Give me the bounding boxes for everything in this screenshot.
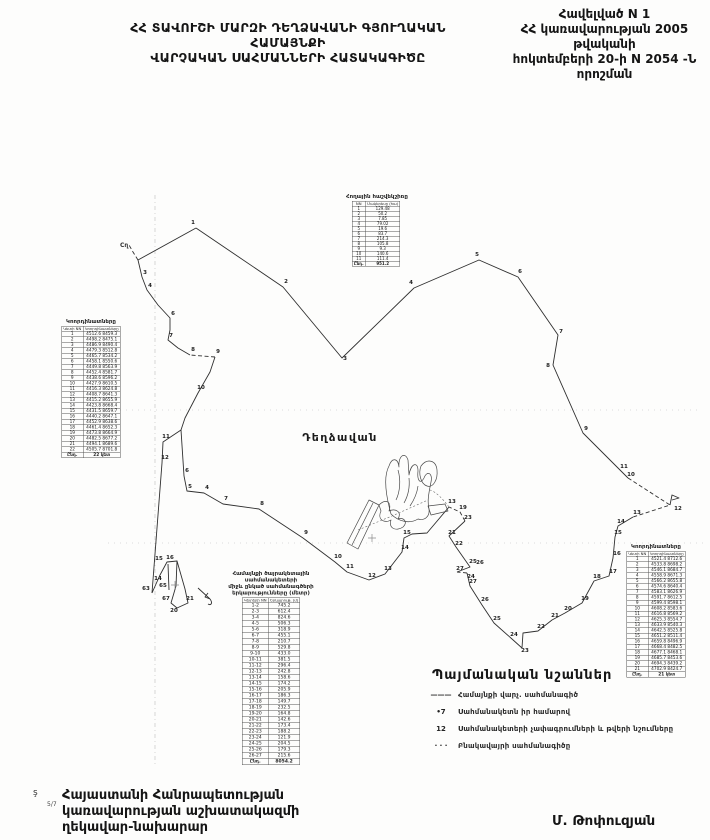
boundary-point-label: 1 <box>191 220 195 226</box>
table-row: 164659.8 8496.9 <box>627 639 686 645</box>
boundary-point-label: 4 <box>148 283 152 289</box>
boundary-point-label: 13 <box>633 510 641 516</box>
signature-block: Հայաստանի Հանրապետության կառավարության ա… <box>62 788 299 836</box>
col-header: Կետի NN <box>627 551 648 556</box>
boundary-point-label: 22 <box>537 624 545 630</box>
village-shape-block-east <box>428 504 448 515</box>
signature-line-2: կառավարության աշխատակազմի <box>62 804 299 820</box>
table-row: 194473.8 8664.9 <box>62 430 121 436</box>
col-header: Երկարութ. (մ) <box>268 598 299 603</box>
cross-mark-2 <box>368 534 376 542</box>
boundary-pocket-stem <box>168 564 169 590</box>
boundary-point-label: 6 <box>171 311 175 317</box>
table-row: 14512.6 8459.3 <box>62 331 121 337</box>
table-landuse-title: Հողային հաշվեկշիռը <box>346 193 406 200</box>
boundary-point-label: 6 <box>185 468 189 474</box>
cross-mark-1 <box>171 581 179 589</box>
legend-symbol: · · · <box>424 742 458 750</box>
flag-point-12 <box>670 495 679 505</box>
legend-item: 12 Սահմանակետերի չափագրումների և թվերի ն… <box>424 725 674 733</box>
legend-symbol: 12 <box>424 725 458 733</box>
table-row: 174452.9 8638.6 <box>62 419 121 425</box>
table-row: 224505.7 8701.8 <box>62 447 121 453</box>
boundary-point-labels: 1234567891011121314151617181920212223242… <box>142 220 682 654</box>
table-row: 84591.7 8612.5 <box>627 595 686 601</box>
table-segments: Համայնքի ծայրակետային սահմանակետերի միջև… <box>226 570 316 765</box>
legend-item: · · · Բնակավայրի սահմանագիծը <box>424 742 674 750</box>
col-header: Կետի NN <box>62 326 83 331</box>
table-coords-left-title: Կոորդինատները <box>58 318 124 325</box>
table-row: 104608.2 8583.6 <box>627 606 686 612</box>
table-row: 74583.1 8626.9 <box>627 589 686 595</box>
scanned-map-sheet: ՀՀ ՏԱՎՈՒՇԻ ՄԱՐԶԻ ԴԵՂՁԱՎԱՆԻ ԳՅՈՒՂԱԿԱՆ ՀԱՄ… <box>0 0 710 840</box>
village-road-dashed <box>358 490 449 530</box>
table-row: 44479.3 8512.8 <box>62 348 121 354</box>
boundary-point-label: 26 <box>476 560 484 566</box>
boundary-pocket <box>152 561 188 608</box>
boundary-point-label: 2 <box>284 279 288 285</box>
boundary-point-label: 11 <box>620 464 628 470</box>
boundary-point-label: 7 <box>559 329 563 335</box>
legend-item-label: Համայնքի վարչ. սահմանագիծ <box>458 691 578 699</box>
table-row: 144642.5 8525.8 <box>627 628 686 634</box>
signature-line-3: ղեկավար-նախարար <box>62 820 299 836</box>
boundary-point-label: 4 <box>205 485 209 491</box>
table-row: 144423.8 8668.4 <box>62 403 121 409</box>
table-row: 74449.8 8563.9 <box>62 364 121 370</box>
table-row: 84452.4 8581.7 <box>62 370 121 376</box>
boundary-point-label: 14 <box>401 545 409 551</box>
table-row: 194685.7 8453.6 <box>627 655 686 661</box>
boundary-point-label: 13 <box>384 566 392 572</box>
boundary-point-label: 10 <box>197 385 205 391</box>
boundary-point-label: 23 <box>521 648 529 654</box>
village-shape-strip <box>347 500 379 549</box>
col-header: Մակերեսը (հա) <box>365 201 400 206</box>
boundary-west-chain <box>184 476 449 580</box>
boundary-point-label: 8 <box>260 501 264 507</box>
table-row: 104427.9 8610.5 <box>62 381 121 387</box>
boundary-point-label: 22 <box>455 541 463 547</box>
boundary-point-label: 27 <box>456 566 464 572</box>
boundary-point-label: 9 <box>584 426 588 432</box>
boundary-point-label: 20 <box>564 606 572 612</box>
table-row: 134415.2 8655.9 <box>62 397 121 403</box>
table-segments-title: Համայնքի ծայրակետային սահմանակետերի միջև… <box>226 570 316 596</box>
boundary-point-label: 9 <box>304 530 308 536</box>
col-header: Կոորդինատները <box>83 326 120 331</box>
table-row: 24498.2 8475.1 <box>62 337 121 343</box>
boundary-point-label: 63 <box>142 586 150 592</box>
boundary-point-label: 18 <box>593 574 601 580</box>
boundary-point-label: 25 <box>493 616 501 622</box>
boundary-point-label: 17 <box>609 569 617 575</box>
legend-item: ——— Համայնքի վարչ. սահմանագիծ <box>424 691 674 699</box>
table-row: 164440.2 8647.1 <box>62 414 121 420</box>
boundary-point-label: 12 <box>161 455 169 461</box>
boundary-nw-dash <box>190 355 215 357</box>
boundary-point-label: 8 <box>546 363 550 369</box>
boundary-point-label: 11 <box>162 434 170 440</box>
legend: Պայմանական նշաններ ——— Համայնքի վարչ. սա… <box>424 668 674 759</box>
signatory-name: Մ. Թոփուզյան <box>552 813 655 829</box>
boundary-point-label: 19 <box>581 596 589 602</box>
boundary-point-label: 14 <box>154 576 162 582</box>
table-row: 204482.5 8677.2 <box>62 436 121 442</box>
legend-symbol: •7 <box>424 708 458 716</box>
boundary-point-label: 12 <box>674 506 682 512</box>
arrow-mark <box>198 588 211 605</box>
boundary-point-label: 15 <box>614 530 622 536</box>
table-row: 204694.3 8439.2 <box>627 661 686 667</box>
boundary-point-label: 6 <box>518 269 522 275</box>
boundary-point-label: 12 <box>368 573 376 579</box>
boundary-point-label: 23 <box>464 515 472 521</box>
boundary-point-label: 3 <box>343 356 347 362</box>
table-coords-left: Կոորդինատները Կետի NN Կոորդինատները 1451… <box>58 318 124 458</box>
table-row: 64458.1 8550.6 <box>62 359 121 365</box>
legend-item-label: Բնակավայրի սահմանագիծը <box>458 742 570 750</box>
boundary-point-label: 13 <box>448 499 456 505</box>
table-row: 154431.5 8659.7 <box>62 408 121 414</box>
boundary-point-label: 10 <box>627 472 635 478</box>
table-row: 44558.9 8671.3 <box>627 573 686 579</box>
boundary-south <box>467 517 633 648</box>
boundary-point-label: 24 <box>467 574 475 580</box>
table-coords-right-title: Կոորդինատները <box>622 543 690 550</box>
legend-symbol: ——— <box>424 691 458 699</box>
table-row: 174668.4 8482.5 <box>627 644 686 650</box>
boundary-point-label: 67 <box>162 596 170 602</box>
table-total-row: Ընդ.8054.2 <box>242 759 300 765</box>
boundary-point-label: 7 <box>224 496 228 502</box>
legend-item-label: Սահմանակետերի չափագրումների և թվերի նշու… <box>458 725 673 733</box>
settlement-label: Դեղձավան <box>302 431 378 444</box>
boundary-point-label: 11 <box>346 564 354 570</box>
boundary-point-label: 4 <box>409 280 413 286</box>
table-row: 54566.2 8655.8 <box>627 578 686 584</box>
legend-item-label: Սահմանակետն իր համարով <box>458 708 570 716</box>
page-mark: 5/7 <box>47 801 57 808</box>
table-row: 14521.4 8712.6 <box>627 556 686 562</box>
boundary-point-label: 16 <box>166 555 174 561</box>
legend-title: Պայմանական նշաններ <box>432 668 674 683</box>
boundary-point-label: 21 <box>186 596 194 602</box>
boundary-point-label: 26 <box>481 597 489 603</box>
boundary-point-label: 21 <box>551 613 559 619</box>
boundary-point-label: 7 <box>169 333 173 339</box>
legend-item: •7 Սահմանակետն իր համարով <box>424 708 674 716</box>
table-row: 124408.7 8641.3 <box>62 392 121 398</box>
table-row: 124625.3 8554.7 <box>627 617 686 623</box>
col-header: Կետերի NN <box>242 598 268 603</box>
corner-stamp-mark: ş <box>33 788 38 798</box>
col-header: Կոորդինատները <box>648 551 685 556</box>
boundary-west-upper <box>138 228 196 355</box>
table-row: 94599.4 8598.1 <box>627 600 686 606</box>
boundary-point-label: 19 <box>459 505 467 511</box>
table-row: 154651.2 8511.4 <box>627 633 686 639</box>
table-row: 94438.6 8596.2 <box>62 375 121 381</box>
signature-line-1: Հայաստանի Հանրապետության <box>62 788 299 804</box>
table-row: 34546.1 8684.7 <box>627 567 686 573</box>
boundary-point-label: 20 <box>170 608 178 614</box>
table-row: 184461.4 8652.3 <box>62 425 121 431</box>
boundary-point-label: 21 <box>448 530 456 536</box>
table-row: 54465.7 8534.2 <box>62 353 121 359</box>
boundary-point-label: 8 <box>191 347 195 353</box>
boundary-point-label: 3 <box>143 270 147 276</box>
boundary-point-label: 15 <box>155 556 163 562</box>
table-row: 114616.8 8569.2 <box>627 611 686 617</box>
table-total-row: Ընդ.951.2 <box>352 261 400 266</box>
corner-c-mark: Cղ <box>120 242 129 249</box>
boundary-northwest <box>181 357 215 476</box>
boundary-spur-dashed <box>129 245 138 260</box>
boundary-point-label: 16 <box>613 551 621 557</box>
table-total-row: Ընդ.22 կետ <box>62 452 121 458</box>
table-row: 184677.1 8468.1 <box>627 650 686 656</box>
table-row: 134633.9 8540.3 <box>627 622 686 628</box>
boundary-point-label: 15 <box>403 530 411 536</box>
boundary-north <box>196 228 628 478</box>
boundary-point-label: 9 <box>216 349 220 355</box>
village-shape-inner <box>396 470 418 506</box>
table-landuse: Հողային հաշվեկշիռը NN Մակերեսը (հա) 1129… <box>346 193 406 267</box>
table-row: 24533.8 8698.2 <box>627 562 686 568</box>
boundary-point-label: 65 <box>159 583 167 589</box>
table-row: 64574.6 8640.4 <box>627 584 686 590</box>
table-row: 34486.9 8490.4 <box>62 342 121 348</box>
boundary-point-label: 5 <box>188 484 192 490</box>
boundary-point-label: 14 <box>617 519 625 525</box>
boundary-point-label: 24 <box>510 632 518 638</box>
boundary-point-label: 5 <box>475 252 479 258</box>
boundary-point-label: 10 <box>334 554 342 560</box>
table-row: 114416.3 8624.8 <box>62 386 121 392</box>
table-coords-right: Կոորդինատները Կետի NN Կոորդինատները 1452… <box>622 543 690 678</box>
table-row: 214494.1 8689.6 <box>62 441 121 447</box>
